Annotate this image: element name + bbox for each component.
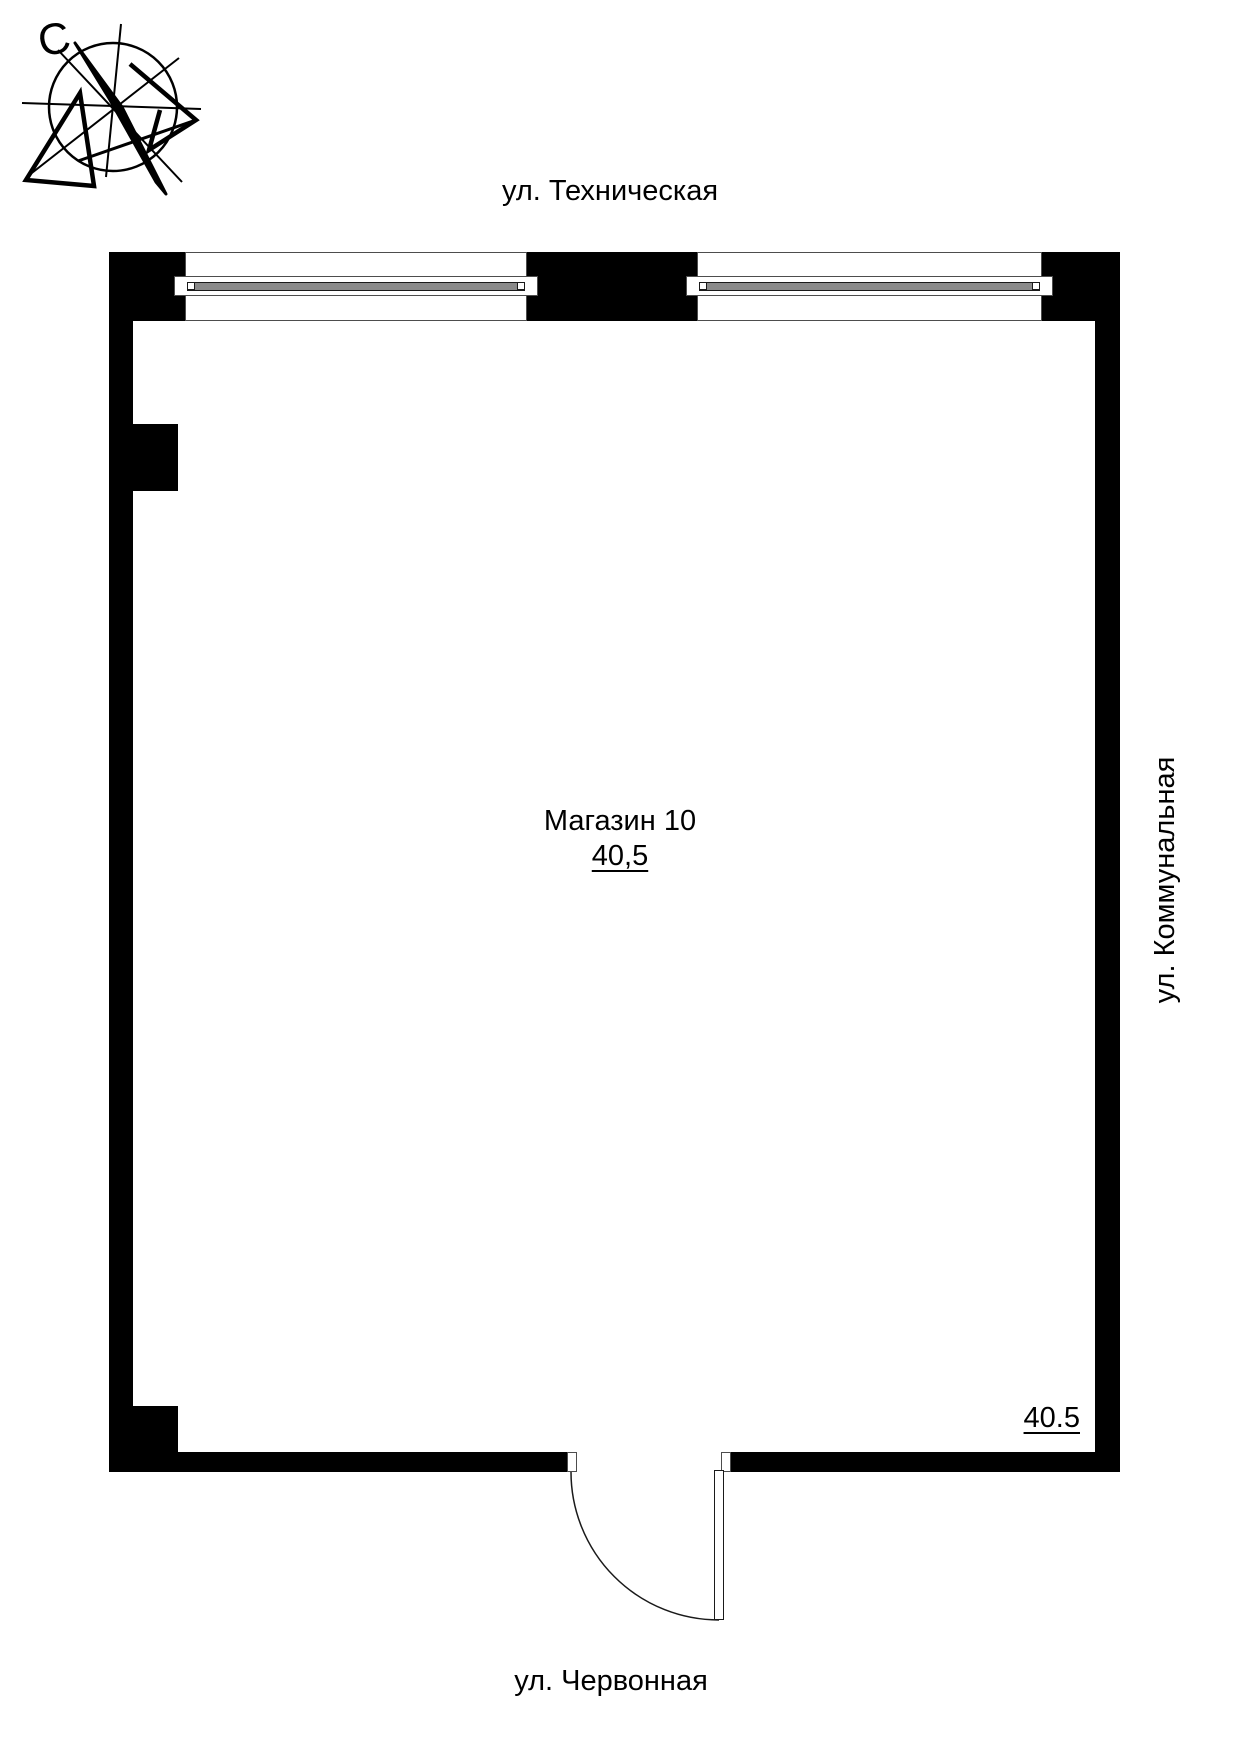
window-1-cap-right <box>517 282 525 290</box>
window-1-glazing-bar <box>187 282 525 291</box>
door-swing-arc <box>560 1465 735 1635</box>
wall-right <box>1095 252 1120 1472</box>
wall-top-middle-pier <box>527 252 697 321</box>
wall-top-right-pier <box>1042 252 1120 321</box>
window-2-cap-right <box>1032 282 1040 290</box>
room-area-label: 40,5 <box>470 841 770 873</box>
wall-left <box>109 252 133 1472</box>
wall-bottom-right <box>730 1452 1120 1472</box>
pilaster-lower-left <box>133 1406 178 1452</box>
window-1-cap-left <box>187 282 195 290</box>
pilaster-upper-left <box>133 424 178 491</box>
wall-bottom-left <box>109 1452 567 1472</box>
floor-plan: Магазин 10 40,5 40.5 <box>0 0 1240 1754</box>
window-2-glazing-bar <box>699 282 1040 291</box>
room-name-label: Магазин 10 <box>470 806 770 838</box>
window-2-cap-left <box>699 282 707 290</box>
dimension-note-label: 40.5 <box>930 1403 1080 1435</box>
